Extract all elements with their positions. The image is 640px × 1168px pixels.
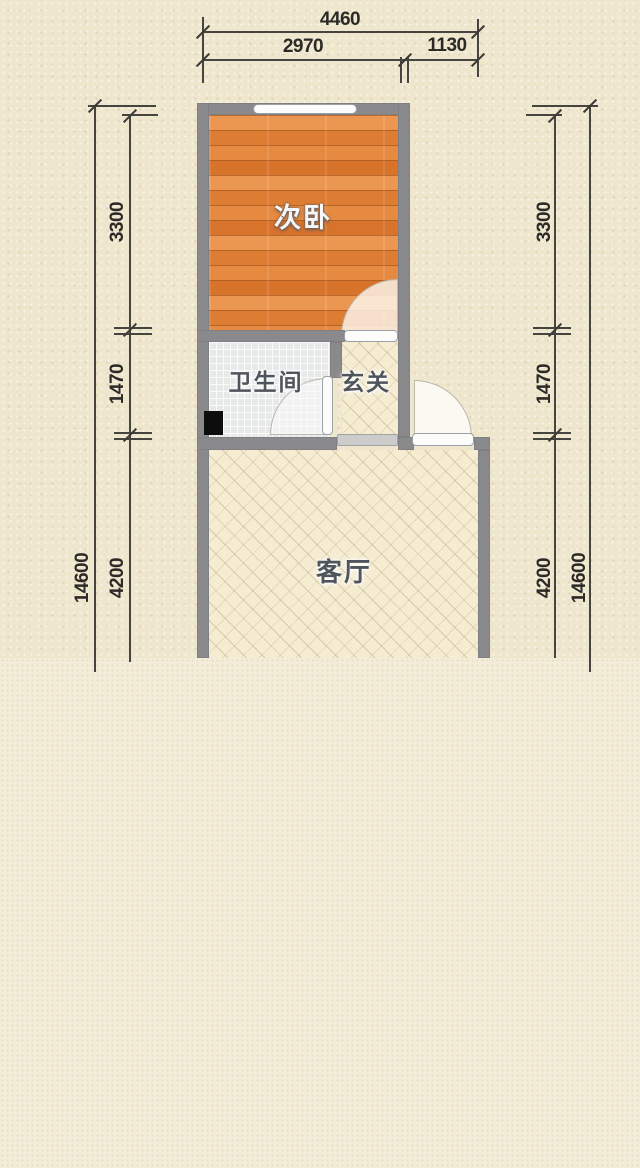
bedroom-door-leaf [344,330,398,342]
extension-line [533,432,571,434]
floorplan-canvas: 次卧 卫生间 玄关 客厅 4460 2970 1130 3300 1470 42… [0,0,640,1168]
dim-left-seg3: 4200 [107,538,129,618]
hall-opening-threshold [337,434,398,446]
dimension-line-left-overall [94,105,96,672]
bedroom-label: 次卧 [243,196,363,235]
wall [478,450,490,658]
extension-line [114,333,152,335]
dim-right-seg3: 4200 [534,538,556,618]
dim-right-seg2: 1470 [534,344,556,424]
wall [197,330,345,342]
extension-line [202,17,204,83]
bedroom-window [253,104,357,114]
dim-top-overall: 4460 [300,9,380,31]
wall [197,437,337,450]
dimension-line-top-overall [203,31,478,33]
hall-label: 玄关 [316,363,416,397]
dimension-line-top-segments [203,59,478,61]
lower-background [0,658,640,1168]
dim-left-overall: 14600 [72,538,94,618]
dim-left-seg1: 3300 [107,182,129,262]
living-room-label: 客厅 [284,552,404,589]
bathroom-label: 卫生间 [196,363,336,397]
extension-line [88,105,156,107]
dim-left-seg2: 1470 [107,344,129,424]
dimension-line-left-segments [129,115,131,662]
extension-line [114,438,152,440]
extension-line [407,57,409,83]
wall [474,437,490,450]
dim-top-seg2: 1130 [407,35,487,57]
dim-top-seg1: 2970 [263,36,343,58]
dim-right-overall: 14600 [569,538,591,618]
dim-right-seg1: 3300 [534,182,556,262]
bathroom-fixture-block [204,411,223,435]
entrance-door-leaf [412,433,474,446]
extension-line [533,327,571,329]
